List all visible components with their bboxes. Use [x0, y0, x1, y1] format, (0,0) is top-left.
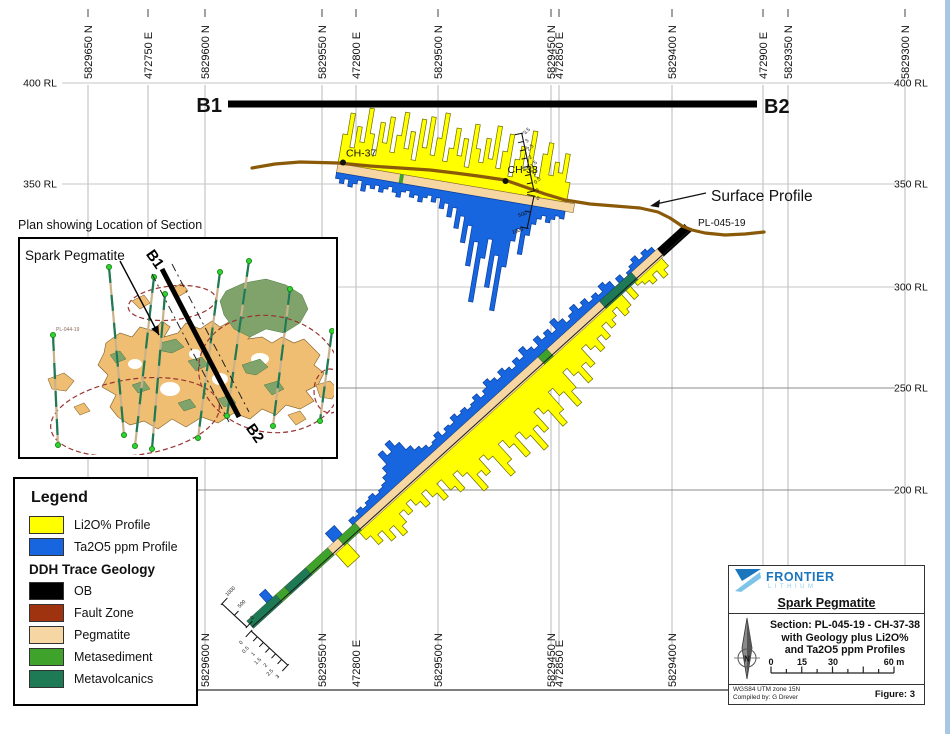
coordinate-label-top: 5829300 N [900, 25, 912, 79]
geology-segment-metavolcanics [285, 568, 313, 594]
figure-number: Figure: 3 [875, 689, 915, 700]
outcrop-hole [128, 359, 142, 369]
inset-b2-label: B2 [242, 421, 267, 446]
coordinate-label-top: 472900 E [758, 32, 770, 79]
legend-item: Li2O% Profile [29, 514, 184, 536]
inset-collar-dot [270, 423, 275, 428]
legend-swatch-metavolcanics [29, 670, 64, 688]
ruler-tick [265, 648, 269, 652]
pegmatite-outcrop-small [48, 373, 74, 391]
legend-item: Metasediment [29, 646, 184, 668]
inset-collar-dot [132, 443, 137, 448]
pegmatite-outcrop-small [288, 411, 306, 425]
ruler-tick [253, 637, 257, 641]
legend-item: OB [29, 580, 184, 602]
spark-pegmatite-arrow [120, 261, 159, 335]
rl-label-right: 300 RL [894, 282, 928, 294]
legend-item: Ta2O5 ppm Profile [29, 536, 184, 558]
scale-label: 0 [768, 657, 773, 667]
ruler-tick [518, 142, 523, 143]
coordinate-label-bottom: 472800 E [351, 640, 363, 687]
legend-item-label: Li2O% Profile [74, 518, 150, 532]
coordinate-label-top: 472750 E [143, 32, 155, 79]
caption-line2: with Geology plus Li2O% [769, 632, 921, 645]
ruler-tick [259, 642, 263, 646]
channel-profiles [336, 108, 575, 311]
coordinate-label-top: 472850 E [554, 32, 566, 79]
rl-label-left: 350 RL [23, 179, 57, 191]
ruler-tick [278, 659, 282, 663]
ta2o5-profile-hole [349, 247, 655, 525]
inset-collar-dot [287, 286, 292, 291]
north-arrow-icon: N [732, 616, 768, 682]
legend-item-label: Metasediment [74, 650, 153, 664]
rl-label-left: 400 RL [23, 78, 57, 90]
inset-collar-dot [149, 446, 154, 451]
ruler-tick [271, 654, 275, 658]
section-caption: Section: PL-045-19 - CH-37-38 with Geolo… [769, 619, 921, 657]
legend: Legend Li2O% ProfileTa2O5 ppm Profile DD… [13, 477, 198, 706]
inset-map-label: Spark Pegmatite [25, 248, 125, 263]
scale-label: 60 m [884, 657, 905, 667]
inset-collar-dot [50, 332, 55, 337]
legend-title: Legend [31, 489, 184, 507]
ruler-tick [234, 611, 238, 615]
legend-swatch-fault [29, 604, 64, 622]
image-edge-strip [945, 0, 950, 734]
figure-page: 5829650 N472750 E5829600 N5829550 N47280… [0, 0, 950, 734]
ruler-ppm-label: 1000 [225, 585, 237, 597]
project-title: Spark Pegmatite [729, 596, 924, 610]
legend-profile-items: Li2O% ProfileTa2O5 ppm Profile [29, 514, 184, 558]
geology-segment-metasediment [305, 548, 334, 576]
legend-swatch-li2o [29, 516, 64, 534]
ch37-label: CH-37 [346, 148, 377, 160]
section-label-b1: B1 [196, 95, 222, 117]
coordinate-label-top: 5829500 N [433, 25, 445, 79]
legend-geology-items: OBFault ZonePegmatiteMetasedimentMetavol… [29, 580, 184, 690]
inset-collar-dot [317, 418, 322, 423]
inset-map-drawing: Spark PegmatiteB1B2PL-044-19 [20, 239, 334, 455]
inset-collar-dot [329, 328, 334, 333]
legend-item-label: Ta2O5 ppm Profile [74, 540, 178, 554]
ruler-pct-label: 3 [275, 674, 281, 680]
outcrop-hole [160, 382, 180, 396]
title-block-header: FRONTIER LITHIUM Spark Pegmatite [729, 566, 924, 614]
coordinate-label-bottom: 5829500 N [433, 633, 445, 687]
surface-profile-arrow-line [656, 193, 706, 204]
surface-profile-label: Surface Profile [711, 188, 813, 205]
legend-item: Metavolcanics [29, 668, 184, 690]
inset-map: Spark PegmatiteB1B2PL-044-19 [18, 237, 338, 459]
legend-swatch-metasediment [29, 648, 64, 666]
coordinate-label-bottom: 472850 E [554, 640, 566, 687]
caption-line3: and Ta2O5 ppm Profiles [769, 644, 921, 657]
ruler-tick [246, 630, 252, 637]
inset-collar-dot [106, 264, 111, 269]
title-block: FRONTIER LITHIUM Spark Pegmatite N Secti… [728, 565, 925, 705]
scale-label: 15 [797, 657, 807, 667]
ruler-pct-label: 3.5 [522, 127, 531, 136]
inset-collar-dot [121, 432, 126, 437]
rl-label-right: 200 RL [894, 485, 928, 497]
coordinate-label-bottom: 5829550 N [317, 633, 329, 687]
coordinate-label-top: 5829550 N [317, 25, 329, 79]
coordinate-label-top: 472800 E [351, 32, 363, 79]
brand-subname: LITHIUM [768, 584, 817, 590]
pl-045-19-label: PL-045-19 [698, 218, 746, 229]
legend-swatch-ob [29, 582, 64, 600]
legend-item: Pegmatite [29, 624, 184, 646]
legend-item-label: Metavolcanics [74, 672, 153, 686]
coordinate-label-top: 5829650 N [83, 25, 95, 79]
title-block-footer: WGS84 UTM zone 15N Compiled by: G Drever… [729, 685, 924, 706]
north-needle-shade [747, 618, 752, 679]
ruler-tick [221, 598, 227, 605]
coordinate-label-bottom: 5829400 N [667, 633, 679, 687]
rl-label-right: 250 RL [894, 383, 928, 395]
title-block-body: N Section: PL-045-19 - CH-37-38 with Geo… [729, 614, 924, 685]
ruler-tick [282, 664, 288, 671]
brand-name: FRONTIER [766, 570, 835, 584]
inset-collar-dot [217, 269, 222, 274]
rl-label-right: 350 RL [894, 179, 928, 191]
legend-swatch-ta2o5 [29, 538, 64, 556]
rl-label-right: 400 RL [894, 78, 928, 90]
frontier-logo-icon [732, 568, 764, 594]
legend-swatch-pegmatite [29, 626, 64, 644]
inset-title: Plan showing Location of Section [18, 218, 202, 232]
ch37-collar-dot [340, 160, 346, 166]
ruler-pct-label: 2 [263, 662, 269, 668]
legend-item-label: Pegmatite [74, 628, 130, 642]
coordinate-label-bottom: 5829600 N [200, 633, 212, 687]
coordinate-label-top: 5829350 N [783, 25, 795, 79]
li2o-profile-hole [358, 257, 668, 545]
caption-line1: Section: PL-045-19 - CH-37-38 [769, 619, 921, 632]
coordinate-label-top: 5829600 N [200, 25, 212, 79]
section-bar-line [228, 101, 757, 108]
legend-item-label: Fault Zone [74, 606, 134, 620]
inset-collar-dot [246, 258, 251, 263]
ruler-pct-label: 1 [250, 651, 256, 657]
legend-item: Fault Zone [29, 602, 184, 624]
section-label-b2: B2 [764, 96, 790, 118]
inset-hole-label: PL-044-19 [56, 327, 80, 333]
ruler-pct-label: 0 [238, 640, 244, 646]
section-bar: B1B2 [196, 95, 789, 118]
ch38-collar-dot [503, 178, 509, 184]
coordinate-label-top: 5829400 N [667, 25, 679, 79]
legend-item-label: OB [74, 584, 92, 598]
inset-collar-dot [195, 435, 200, 440]
metasediment-patch [220, 279, 308, 337]
inset-collar-dot [55, 442, 60, 447]
ruler-ppm-label: 500 [237, 599, 247, 609]
scale-bar: 0153060 m [767, 656, 922, 682]
scale-label: 30 [828, 657, 838, 667]
pegmatite-outcrop-small [74, 403, 90, 415]
legend-subhead: DDH Trace Geology [29, 558, 184, 580]
ruler-pct-label: 3 [524, 138, 530, 144]
surface-profile-arrowhead [650, 200, 660, 208]
north-letter: N [744, 655, 750, 664]
eoh-ruler: 0500100000.511.522.53 [204, 585, 305, 683]
